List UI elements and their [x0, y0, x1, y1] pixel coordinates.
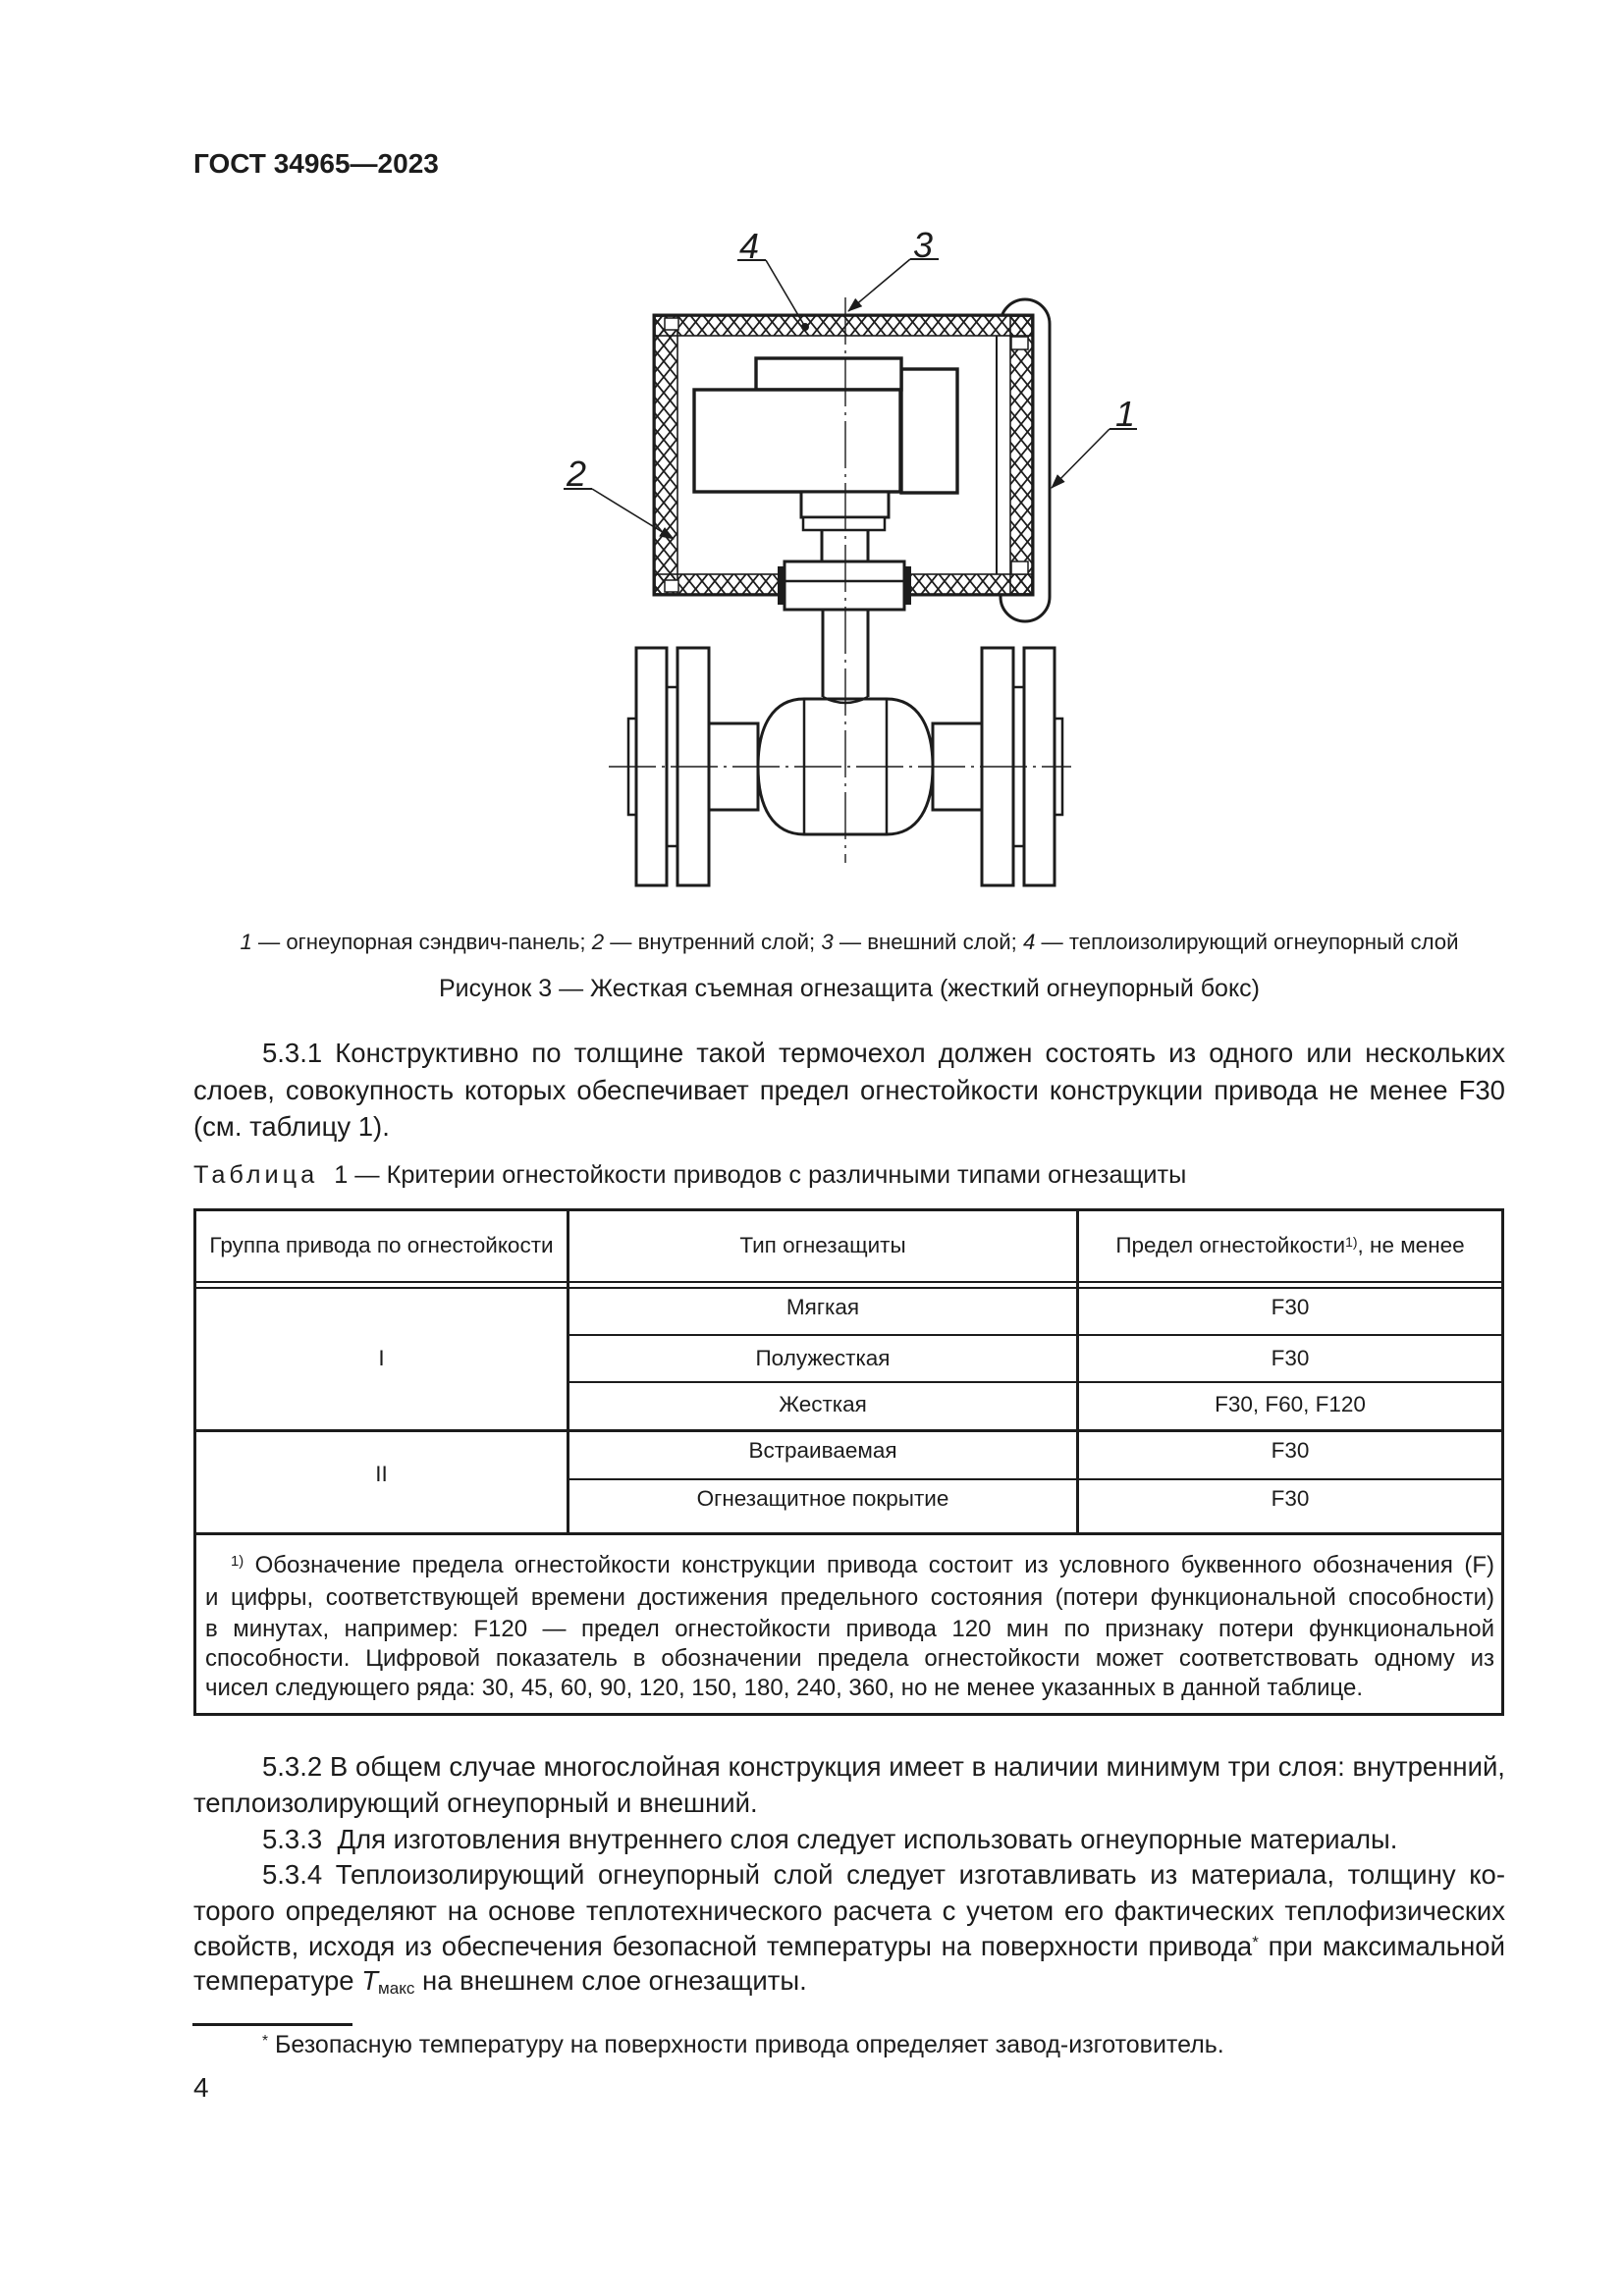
svg-text:3: 3 [913, 225, 933, 265]
svg-text:1: 1 [1115, 394, 1135, 434]
svg-text:4: 4 [739, 226, 759, 266]
svg-text:2: 2 [566, 454, 586, 494]
